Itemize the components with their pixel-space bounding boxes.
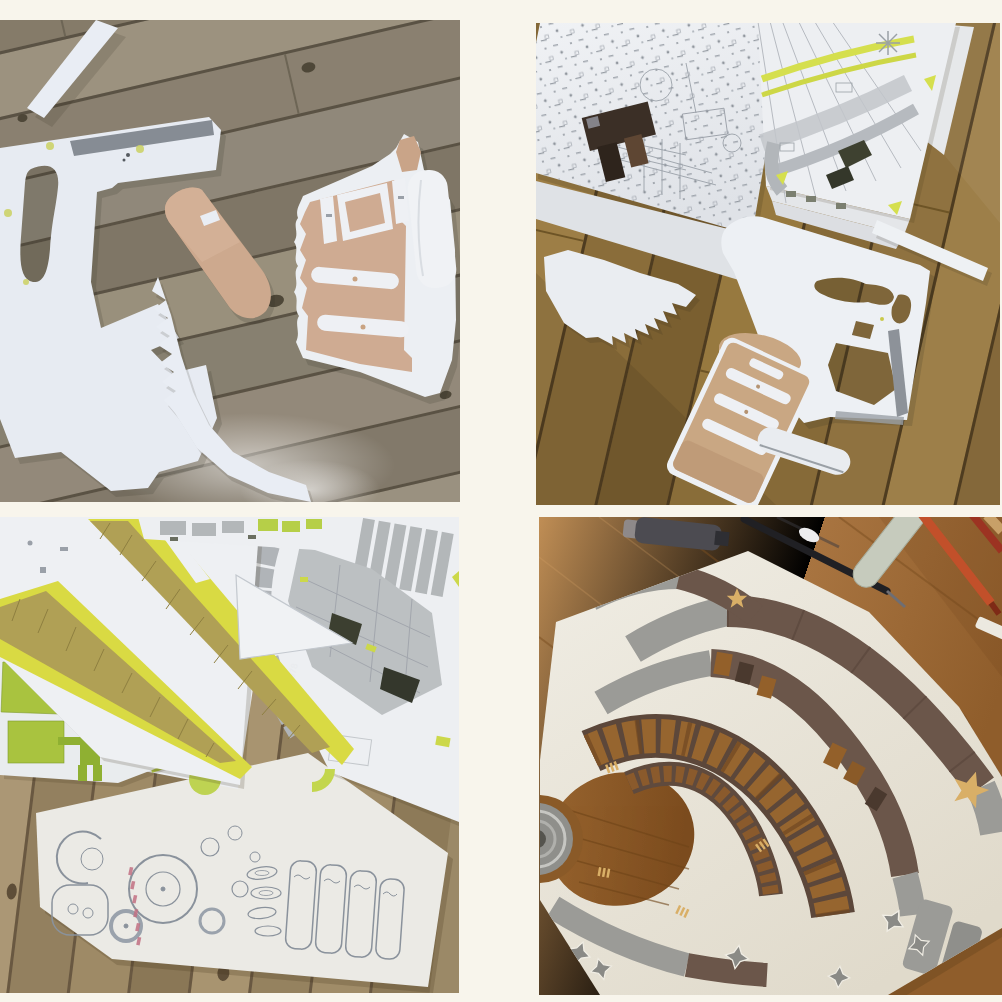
photo-top-right — [536, 23, 1000, 505]
photo-top-left-image — [0, 20, 460, 502]
asterisk-icon — [876, 31, 900, 55]
photo-bottom-right — [539, 517, 1002, 995]
photo-top-right-image — [536, 23, 1000, 505]
photo-top-left — [0, 20, 460, 502]
photo-collage: 978 — [0, 0, 1002, 1002]
photo-bottom-left-image: 978 — [0, 517, 459, 993]
photo-bottom-left: 978 — [0, 517, 459, 993]
photo-bottom-right-image — [539, 517, 1002, 995]
